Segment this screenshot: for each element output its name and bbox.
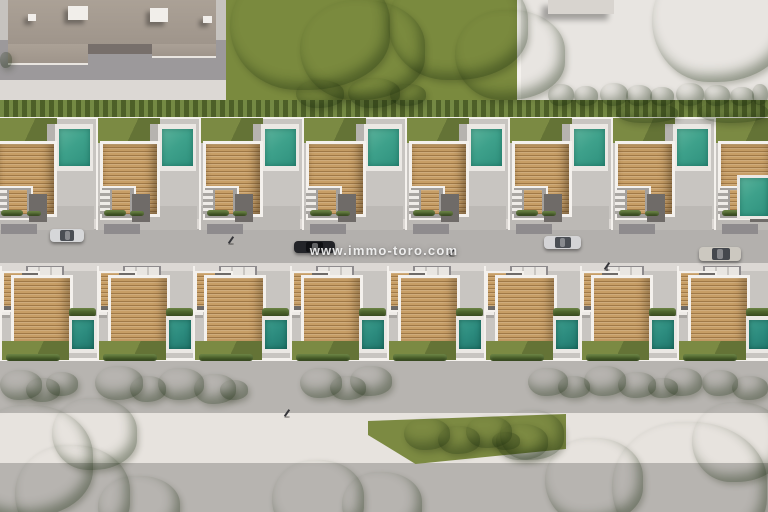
entry-court xyxy=(132,194,150,222)
entry-court xyxy=(647,194,665,222)
villa-unit-top xyxy=(0,118,96,232)
villa-unit-bottom xyxy=(677,266,768,361)
bush xyxy=(600,83,628,106)
front-hedge xyxy=(310,210,332,216)
roof-terrace xyxy=(688,275,750,351)
apartment-roof-wing xyxy=(8,44,88,65)
tree xyxy=(52,398,137,470)
entry-court xyxy=(29,194,47,222)
plot-wall xyxy=(405,118,407,230)
villa-unit-bottom xyxy=(580,266,677,361)
tree xyxy=(692,402,768,482)
front-hedge xyxy=(130,211,144,216)
roof-terrace xyxy=(398,275,460,351)
plot-wall xyxy=(97,266,99,360)
villa-unit-top xyxy=(405,118,508,232)
plot-wall xyxy=(484,266,486,360)
villa-unit-top xyxy=(302,118,405,232)
corner-pool-water xyxy=(740,178,768,216)
pool-water xyxy=(677,129,708,166)
car xyxy=(50,229,84,242)
roof-terrace xyxy=(495,275,557,351)
front-hedge xyxy=(1,210,23,216)
front-hedge xyxy=(207,210,229,216)
tree xyxy=(455,10,565,100)
roof-terrace xyxy=(301,275,363,351)
villa-unit-top xyxy=(611,118,714,232)
front-hedge xyxy=(27,211,41,216)
entry-court xyxy=(235,194,253,222)
bush xyxy=(676,83,704,106)
small-building-roof xyxy=(548,0,614,14)
villa-unit-bottom xyxy=(193,266,290,361)
carport-pad xyxy=(619,224,655,234)
plot-wall xyxy=(714,118,716,230)
tree xyxy=(698,101,768,123)
rooftop-vent xyxy=(150,8,168,22)
villa-unit-top xyxy=(96,118,199,232)
carport-pad xyxy=(516,224,552,234)
entry-court xyxy=(544,194,562,222)
bush xyxy=(752,84,768,105)
villa-unit-bottom xyxy=(484,266,581,361)
bush xyxy=(664,368,702,396)
villa-unit-top xyxy=(508,118,611,232)
bush xyxy=(0,52,12,68)
corner-pool-deck xyxy=(737,175,768,219)
plot-wall xyxy=(96,118,98,230)
pedestrian xyxy=(284,409,290,419)
villa-unit-bottom xyxy=(0,266,97,361)
carport-pad xyxy=(207,224,243,234)
pool-water xyxy=(471,129,502,166)
plot-wall xyxy=(290,266,292,360)
rear-hedge xyxy=(490,354,544,361)
entry-court xyxy=(338,194,356,222)
front-hedge xyxy=(619,210,641,216)
pool-water xyxy=(556,320,578,349)
rear-hedge xyxy=(199,354,253,361)
roof-terrace xyxy=(108,275,170,351)
rooftop-vent xyxy=(28,14,36,21)
rear-hedge xyxy=(296,354,350,361)
front-hedge xyxy=(542,211,556,216)
apartment-roof-wing xyxy=(152,44,216,58)
front-hedge xyxy=(413,210,435,216)
bush xyxy=(732,376,768,400)
roof-terrace xyxy=(591,275,653,351)
carport-pad xyxy=(1,224,37,234)
rear-hedge xyxy=(586,354,640,361)
front-hedge xyxy=(233,211,247,216)
white-walkway-top-left xyxy=(0,80,258,102)
villa-unit-top xyxy=(199,118,302,232)
pool-water xyxy=(368,129,399,166)
front-hedge xyxy=(645,211,659,216)
plot-wall xyxy=(199,118,201,230)
flowering-bush xyxy=(390,84,426,106)
front-hedge xyxy=(439,211,453,216)
plot-wall xyxy=(580,266,582,360)
pool-water xyxy=(265,320,287,349)
villa-unit-bottom xyxy=(290,266,387,361)
pool-water xyxy=(362,320,384,349)
pool-water xyxy=(265,129,296,166)
roof-terrace xyxy=(11,275,73,351)
plot-wall xyxy=(193,266,195,360)
pool-water xyxy=(459,320,481,349)
pool-water xyxy=(574,129,605,166)
bush xyxy=(46,372,78,396)
plot-wall xyxy=(611,118,613,230)
bush xyxy=(350,366,392,396)
plot-wall xyxy=(677,266,679,360)
rooftop-vent xyxy=(203,16,212,23)
carport-pad xyxy=(310,224,346,234)
carport-pad xyxy=(413,224,449,234)
roof-terrace xyxy=(204,275,266,351)
rear-hedge xyxy=(6,354,60,361)
plot-wall xyxy=(508,118,510,230)
aerial-site-plan-render: www.immo-toro.com xyxy=(0,0,768,512)
rear-hedge xyxy=(683,354,737,361)
front-hedge xyxy=(336,211,350,216)
carport-pad xyxy=(722,224,758,234)
entry-court xyxy=(441,194,459,222)
rear-hedge xyxy=(393,354,447,361)
plot-wall xyxy=(302,118,304,230)
pool-water xyxy=(169,320,191,349)
rooftop-vent xyxy=(68,6,88,20)
pool-water xyxy=(59,129,90,166)
watermark-text: www.immo-toro.com xyxy=(0,243,768,259)
car-roof-highlight xyxy=(65,231,70,240)
bush xyxy=(548,84,574,106)
flowering-bush xyxy=(574,86,598,106)
apartment-building-roof xyxy=(8,0,216,46)
flowering-bush xyxy=(296,80,344,108)
flowering-bush xyxy=(220,380,248,400)
tree xyxy=(616,103,678,123)
villa-unit-bottom xyxy=(97,266,194,361)
front-hedge xyxy=(104,210,126,216)
pool-water xyxy=(72,320,94,349)
plot-wall xyxy=(387,266,389,360)
villa-unit-bottom xyxy=(387,266,484,361)
rear-hedge xyxy=(103,354,157,361)
plot-wall xyxy=(0,266,2,360)
pool-water xyxy=(652,320,674,349)
front-hedge xyxy=(516,210,538,216)
apartment-roof-recess xyxy=(88,44,152,54)
pedestrian xyxy=(604,262,610,272)
pool-water xyxy=(162,129,193,166)
carport-pad xyxy=(104,224,140,234)
pool-water xyxy=(749,320,768,349)
